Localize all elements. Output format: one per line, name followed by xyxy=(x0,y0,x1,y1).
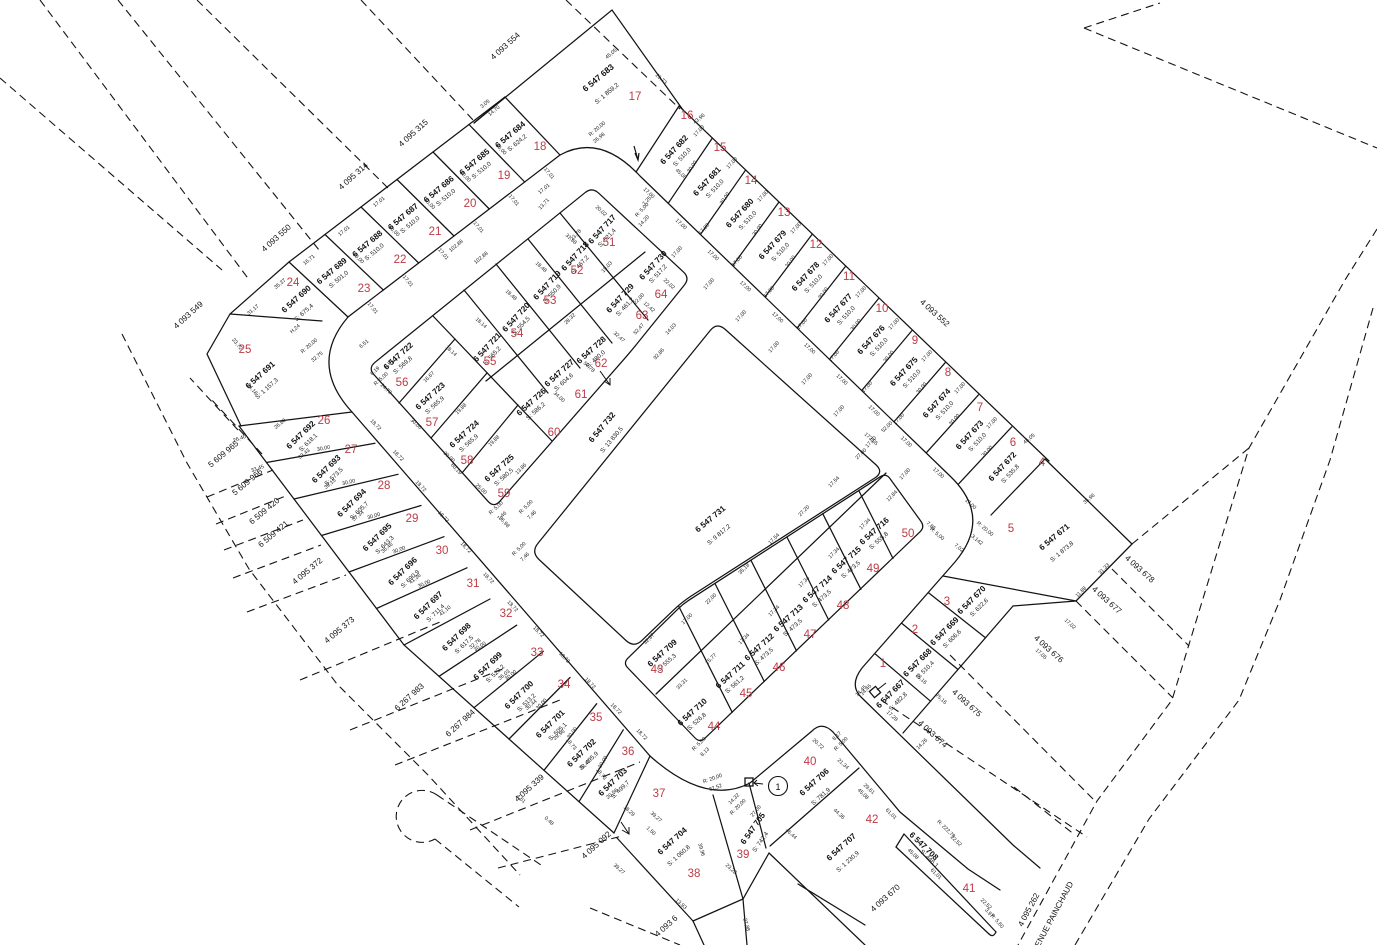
svg-text:64: 64 xyxy=(655,289,668,301)
svg-text:49: 49 xyxy=(867,563,880,575)
svg-text:3: 3 xyxy=(944,596,950,608)
svg-text:32: 32 xyxy=(500,608,513,620)
svg-text:57: 57 xyxy=(426,417,439,429)
svg-text:40: 40 xyxy=(804,756,817,768)
svg-text:24: 24 xyxy=(287,277,300,289)
svg-text:43: 43 xyxy=(651,664,664,676)
svg-text:1: 1 xyxy=(775,782,780,792)
svg-text:19: 19 xyxy=(498,170,511,182)
svg-text:16: 16 xyxy=(681,110,694,122)
svg-text:28: 28 xyxy=(378,480,391,492)
svg-text:46: 46 xyxy=(773,662,786,674)
svg-text:55: 55 xyxy=(484,356,497,368)
svg-text:54: 54 xyxy=(511,328,524,340)
svg-text:18: 18 xyxy=(534,141,547,153)
svg-text:6: 6 xyxy=(1010,437,1016,449)
svg-text:29: 29 xyxy=(406,513,419,525)
svg-text:1: 1 xyxy=(880,658,886,670)
svg-text:15: 15 xyxy=(714,142,727,154)
svg-text:45: 45 xyxy=(740,688,753,700)
svg-text:14: 14 xyxy=(745,175,758,187)
svg-text:41: 41 xyxy=(963,883,976,895)
svg-text:21: 21 xyxy=(429,226,442,238)
svg-text:51: 51 xyxy=(603,237,616,249)
svg-text:37: 37 xyxy=(653,788,666,800)
svg-text:11: 11 xyxy=(843,271,855,283)
svg-text:60: 60 xyxy=(548,427,561,439)
svg-text:23: 23 xyxy=(358,283,371,295)
svg-text:9: 9 xyxy=(912,335,918,347)
svg-text:56: 56 xyxy=(396,377,409,389)
svg-text:35: 35 xyxy=(590,712,603,724)
svg-text:20: 20 xyxy=(464,198,477,210)
svg-text:26: 26 xyxy=(318,415,331,427)
svg-text:53: 53 xyxy=(544,295,557,307)
svg-text:58: 58 xyxy=(461,455,474,467)
svg-text:7: 7 xyxy=(977,402,983,414)
svg-text:27: 27 xyxy=(345,444,358,456)
svg-text:34: 34 xyxy=(558,679,571,691)
svg-text:39: 39 xyxy=(737,849,750,861)
svg-text:30: 30 xyxy=(436,545,449,557)
svg-text:42: 42 xyxy=(866,814,879,826)
svg-text:62: 62 xyxy=(595,358,608,370)
svg-text:12: 12 xyxy=(810,239,823,251)
svg-text:13: 13 xyxy=(778,207,791,219)
svg-text:33: 33 xyxy=(531,647,544,659)
svg-text:59: 59 xyxy=(498,488,511,500)
svg-text:63: 63 xyxy=(636,310,649,322)
svg-text:5: 5 xyxy=(1008,523,1014,535)
svg-text:10: 10 xyxy=(876,303,889,315)
svg-text:50: 50 xyxy=(902,528,915,540)
svg-text:48: 48 xyxy=(837,600,850,612)
svg-text:31: 31 xyxy=(467,578,480,590)
svg-text:22: 22 xyxy=(394,254,407,266)
svg-text:61: 61 xyxy=(575,389,588,401)
svg-text:36: 36 xyxy=(622,746,635,758)
svg-text:52: 52 xyxy=(571,265,584,277)
svg-text:17: 17 xyxy=(629,91,642,103)
svg-text:8: 8 xyxy=(945,367,951,379)
svg-text:44: 44 xyxy=(708,721,721,733)
svg-text:4: 4 xyxy=(1039,457,1046,469)
svg-text:2: 2 xyxy=(912,624,918,636)
svg-text:47: 47 xyxy=(804,629,817,641)
svg-text:38: 38 xyxy=(688,868,701,880)
